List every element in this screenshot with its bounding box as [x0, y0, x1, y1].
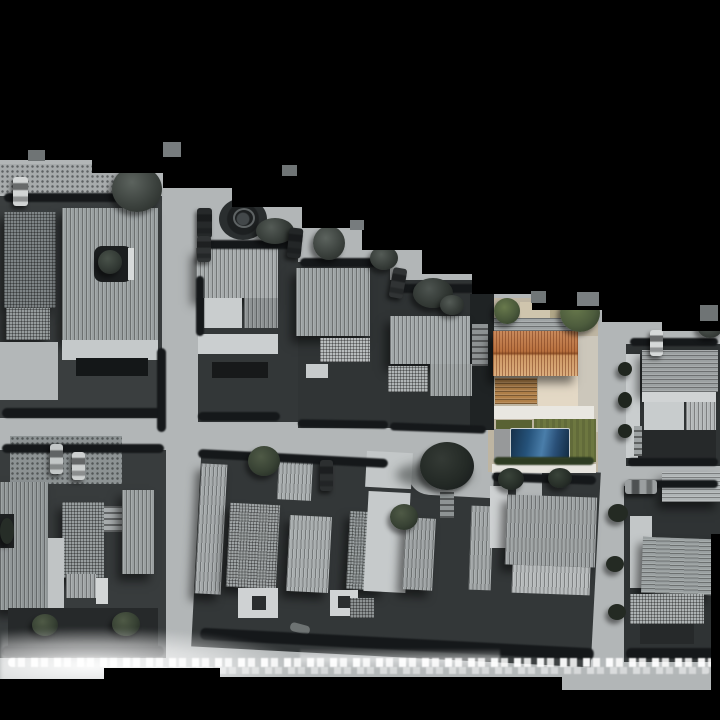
street-tree-4: [370, 246, 398, 270]
roofline-nub-5: [531, 291, 546, 303]
br-ribbed-roof: [641, 537, 713, 595]
tr-panel-right: [686, 402, 716, 430]
br-dark-yard: [640, 624, 694, 644]
tr-stairs: [634, 426, 642, 456]
villa-terracotta-roof: [493, 331, 578, 376]
tl-terrace: [62, 340, 158, 360]
villa-garden-tree-1: [498, 468, 524, 490]
br-grid-conservatory: [630, 594, 704, 624]
tl-courtyard-frame: [128, 248, 134, 280]
car-white-top-left: [13, 177, 28, 206]
hedge-g2-bottom: [298, 419, 388, 429]
tr-panel-left: [644, 402, 684, 430]
bl-terrace-strip: [48, 538, 64, 610]
roofline-nub-2: [163, 142, 181, 157]
g2-lattice: [320, 338, 370, 362]
g2-ribbed-roof: [296, 268, 370, 336]
villa-tree: [560, 294, 600, 332]
car-dark-vs1-b: [197, 236, 211, 262]
roofline-nub-7: [700, 305, 718, 321]
bl-grid-building: [62, 502, 104, 578]
g3-ribbed-low: [430, 364, 472, 396]
aerial-render-canvas: [0, 0, 720, 720]
car-white-top-right: [650, 330, 663, 356]
junction-tree: [420, 442, 474, 490]
right-edge-notch: [711, 534, 720, 690]
bm-ribbed-roof-2: [286, 515, 332, 593]
g1-terrace: [198, 334, 278, 354]
g1-panel: [204, 298, 242, 328]
villa-vine: [494, 298, 520, 324]
g3-grid-panel: [388, 366, 428, 392]
site-plate: [0, 0, 720, 720]
bm-stairs: [440, 492, 454, 518]
g2-terrace: [306, 364, 328, 378]
tl-courtyard-tree: [98, 250, 122, 274]
bm-court-tree: [390, 504, 418, 530]
bm-light-panel: [512, 565, 591, 596]
street-tree-7: [697, 314, 720, 338]
g1-ribbed-panel: [244, 298, 278, 328]
car-dark-bm: [320, 460, 333, 491]
villa-garden-tree-2: [548, 468, 572, 488]
bm-small-grid: [350, 598, 374, 618]
g3-ribbed-roof: [390, 316, 470, 364]
bl-courtyard-tree: [0, 518, 14, 544]
car-dark-top-mid: [286, 227, 303, 258]
villa-walkway: [494, 406, 594, 419]
car-gray-br: [625, 480, 657, 494]
vs2-tree-4: [608, 504, 628, 522]
roofline-nub-3: [282, 165, 297, 176]
street-tree-3: [313, 226, 345, 260]
bm-big-ribbed-roof: [505, 494, 597, 567]
tl-tower-low: [6, 308, 50, 340]
tr-white-wall: [642, 392, 716, 402]
bm-grid-roof-1: [226, 503, 280, 590]
tl-low-wing: [0, 342, 58, 400]
g1-yard-pool: [212, 362, 268, 378]
tl-tower: [4, 212, 56, 308]
vs2-tree-2: [618, 392, 632, 408]
facade-stairs: [472, 324, 488, 366]
street-tree-1: [112, 166, 162, 212]
vs2-tree-5: [606, 556, 624, 572]
vs2-tree-6: [608, 604, 626, 620]
bl-small-ribbed: [66, 574, 96, 598]
bl-ribbed-roof-2: [122, 490, 154, 574]
bl-stairs: [104, 506, 122, 532]
street-tree-6: [440, 295, 464, 315]
bl-white-unit: [96, 578, 108, 604]
villa-pool: [510, 428, 570, 459]
villa-timber-deck: [495, 378, 537, 404]
hedge-vs1-left: [157, 348, 166, 432]
sidewalk-dash-line-1: [8, 658, 714, 667]
roofline-nub-6: [577, 292, 599, 306]
villa-cream-terrace: [538, 376, 578, 407]
hedge-tr-top: [630, 338, 718, 346]
car-white-parking-b: [72, 452, 85, 480]
vs2-tree-1: [618, 362, 632, 376]
hedge-tl-bottom: [2, 408, 162, 418]
hedge-tr-bottom: [628, 458, 718, 466]
sidewalk-dash-line-2: [150, 667, 710, 674]
bm-unit-1-vent: [252, 596, 266, 610]
bm-corner-tree: [248, 446, 280, 476]
roundabout-ring: [233, 208, 255, 228]
vs2-tree-3: [618, 424, 632, 438]
bm-unit-2-vent: [338, 596, 350, 608]
tl-yard-pool: [76, 358, 148, 376]
villa-shrub-row: [494, 457, 594, 465]
hedge-g1-bottom: [198, 412, 280, 421]
tr-ribbed-roof: [642, 350, 718, 392]
car-silver-parking-a: [50, 444, 63, 474]
hedge-vs1-right: [196, 276, 204, 336]
car-dark-vs1-a: [197, 208, 212, 238]
roofline-nub-1: [28, 150, 45, 161]
